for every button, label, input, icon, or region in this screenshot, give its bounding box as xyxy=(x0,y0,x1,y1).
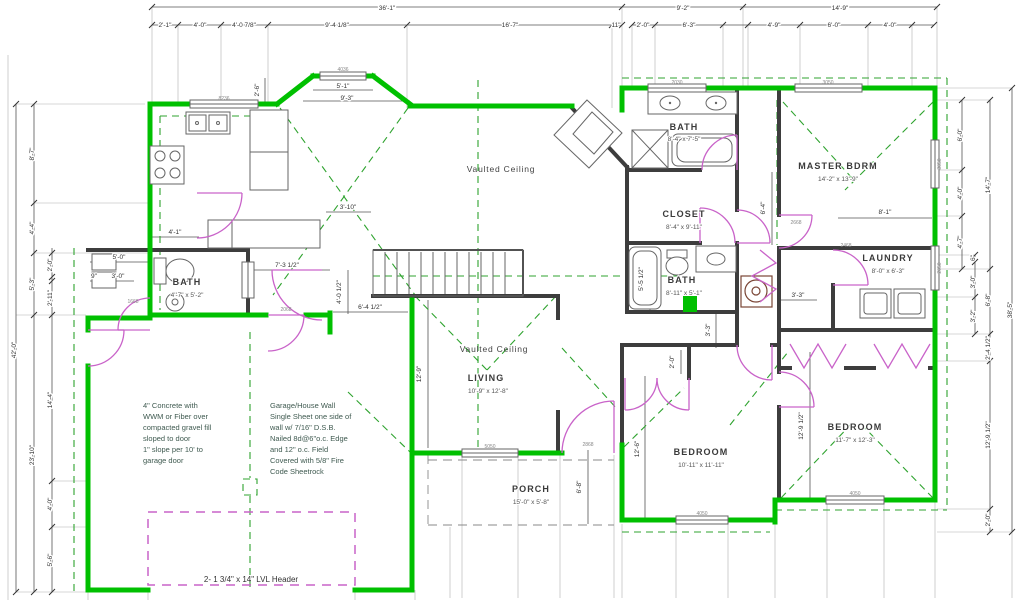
dim-label: 3'-3" xyxy=(792,292,806,299)
bathtub-2 xyxy=(629,247,661,309)
dim-label: 14'-7" xyxy=(985,176,992,193)
room-size: 14'-2" x 13'-9" xyxy=(818,176,859,183)
room-label-laundry: LAUNDRY xyxy=(862,253,913,263)
room-label-master: MASTER BDRM xyxy=(798,161,878,171)
dim-label: 4'-0" xyxy=(957,186,964,200)
dim-label: 6'-3" xyxy=(683,22,697,29)
dim-label: 9" xyxy=(91,273,98,280)
dim-label: 42'-0" xyxy=(11,341,18,358)
dim-label: 3'-10" xyxy=(340,204,357,211)
room-label-closet: CLOSET xyxy=(662,209,705,219)
room-label-living: LIVING xyxy=(468,373,505,383)
door-tag: 2068 xyxy=(280,307,291,313)
note-line: Garage/House Wall xyxy=(270,401,336,410)
room-label-bedroom-2: BEDROOM xyxy=(828,422,883,432)
room-size: 8'-4" x 9'-11" xyxy=(666,224,703,231)
door-garage-entry xyxy=(268,315,304,351)
room-size: 8'-0" x 6'-3" xyxy=(872,268,905,275)
dim-label: 38'-5" xyxy=(1007,301,1014,318)
note-line: sloped to door xyxy=(143,434,191,443)
dim-label: 2'-1" xyxy=(159,22,173,29)
window-tag: 3050 xyxy=(937,158,943,169)
room-size: 10'-9" x 12'-8" xyxy=(468,388,509,395)
dim-label: 6'-8" xyxy=(576,480,583,494)
door-garage-side xyxy=(88,330,124,366)
dim-label: 3'-3" xyxy=(705,323,712,337)
dim-label: 2'-0" xyxy=(985,513,992,527)
water-heater xyxy=(741,276,772,307)
room-size: 8'-4" x 7'-5" xyxy=(668,136,701,143)
toilet-2 xyxy=(666,250,688,275)
dim-label: 7'-3 1/2" xyxy=(275,262,299,269)
garage-center-post xyxy=(243,479,257,495)
dim-label: 12'-6" xyxy=(634,440,641,457)
room-label-porch: PORCH xyxy=(512,484,550,494)
dim-label: 23'-10" xyxy=(29,444,36,465)
dim-label: 4'-4" xyxy=(29,221,36,235)
refrigerator xyxy=(250,110,288,190)
dim-label: 16'-7" xyxy=(502,22,519,29)
room-size: 4'-7" x 5'-2" xyxy=(171,292,204,299)
room-size: 15'-0" x 5'-8" xyxy=(513,499,550,506)
dim-label: 5'-3" xyxy=(29,277,36,291)
note-line: wall w/ 7/16" D.S.B. xyxy=(269,423,336,432)
room-label-bath-mid: BATH xyxy=(668,275,697,285)
note-line: garage door xyxy=(143,456,184,465)
dim-label: 3'-0" xyxy=(112,273,126,280)
dim-label: 6'-8" xyxy=(985,293,992,307)
window-tag: 8236 xyxy=(218,96,229,102)
vaulted-ceiling-label: Vaulted Ceiling xyxy=(467,164,536,174)
note-line: Single Sheet one side of xyxy=(270,412,352,421)
dim-label: 8'-7" xyxy=(29,147,36,161)
kitchen-sink xyxy=(186,112,230,134)
construction-notes: 4" Concrete with WWM or Fiber over compa… xyxy=(143,401,352,584)
pocket-door xyxy=(242,262,254,298)
roof-dashed-lines xyxy=(74,78,947,592)
note-line: Covered with 5/8" Fire xyxy=(270,456,344,465)
dim-label: 4'-0" xyxy=(47,497,54,511)
bath-vanity-double xyxy=(648,92,737,114)
dim-label: 4'-0 1/2" xyxy=(336,279,343,303)
dim-label: 4'-0 7/8" xyxy=(232,22,256,29)
dim-label: 12'-9 1/2" xyxy=(985,421,992,449)
dim-label: 2'-0" xyxy=(637,22,651,29)
room-size: 8'-11" x 5'-1" xyxy=(666,290,703,297)
dim-label: 11" xyxy=(611,22,621,29)
structural-post xyxy=(683,296,697,312)
dim-label: 2'-0" xyxy=(47,258,54,272)
dim-label: 9'-4 1/8" xyxy=(325,22,349,29)
note-line: 1" slope per 10' to xyxy=(143,445,203,454)
window xyxy=(826,496,884,504)
dim-label: 6'-0" xyxy=(957,128,964,142)
dim-label: 2'-0" xyxy=(669,355,676,369)
shower xyxy=(632,130,668,168)
room-label-bath-left: BATH xyxy=(173,277,202,287)
room-label-bedroom-1: BEDROOM xyxy=(674,447,729,457)
dim-label: 5'-6" xyxy=(47,553,54,567)
room-size: 10'-11" x 11'-11" xyxy=(678,462,724,469)
lvl-header-note: 2- 1 3/4" x 14" LVL Header xyxy=(204,575,299,584)
window xyxy=(320,72,366,80)
door-tag: 2468 xyxy=(840,243,851,249)
interior-walls xyxy=(88,88,935,500)
room-size: 11'-7" x 12'-3" xyxy=(835,437,875,444)
door-bedroom-2 xyxy=(779,372,814,407)
dim-label: 6" xyxy=(970,254,977,261)
entry-fireplace xyxy=(554,100,622,168)
note-line: and 12" o.c. Field xyxy=(270,445,328,454)
window-tag: 5050 xyxy=(484,444,495,450)
dim-label: 12'-9 1/2" xyxy=(798,412,805,440)
dim-label: 36'-1" xyxy=(379,5,396,12)
window-tag: 2050 xyxy=(937,262,943,273)
door-bedroom-1 xyxy=(737,345,772,380)
dim-label: 9'-2" xyxy=(677,5,691,12)
dim-label: 2'-4 1/2" xyxy=(985,335,992,359)
dim-label: 6'-4" xyxy=(760,201,767,215)
dim-label: 6'-0" xyxy=(828,22,842,29)
dim-label: 5'-1" xyxy=(337,83,351,90)
window xyxy=(676,516,728,524)
dim-label: 8'-1" xyxy=(879,209,893,216)
dim-label: 14'-9" xyxy=(832,5,849,12)
dim-label: 3'-2" xyxy=(970,309,977,323)
note-line: Nailed 8d@6"o.c. Edge xyxy=(270,434,348,443)
dim-label: 2'-11" xyxy=(47,289,54,306)
dim-label: 5'-0" xyxy=(113,254,127,261)
washer xyxy=(860,289,891,318)
note-line: Code Sheetrock xyxy=(270,467,324,476)
stove xyxy=(150,146,184,184)
dim-label: 3'-0" xyxy=(970,275,977,289)
dim-label: 9'-3" xyxy=(341,95,355,102)
door-closet-double xyxy=(625,378,689,410)
staircase xyxy=(373,250,523,296)
exterior-walls xyxy=(88,76,935,590)
dim-label: 2'-6" xyxy=(254,83,261,97)
window-tag: 4050 xyxy=(849,491,860,497)
dim-label: 14'-4" xyxy=(47,391,54,408)
kitchen-counter xyxy=(208,220,320,248)
dim-label: 4'-9" xyxy=(768,22,782,29)
note-line: WWM or Fiber over xyxy=(143,412,209,421)
door-tag: 2868 xyxy=(582,442,593,448)
dim-label: 5'-5 1/2" xyxy=(638,266,645,290)
window-tag: 4036 xyxy=(337,67,348,73)
dryer xyxy=(894,289,925,318)
window-tag: 2030 xyxy=(671,80,682,86)
vaulted-ceiling-label: Vaulted Ceiling xyxy=(460,344,529,354)
note-line: 4" Concrete with xyxy=(143,401,198,410)
window-tag: 3050 xyxy=(822,80,833,86)
dim-label: 4'-1" xyxy=(169,229,183,236)
note-line: compacted gravel fill xyxy=(143,423,212,432)
room-label-bath-top: BATH xyxy=(670,122,699,132)
window-tag: 4050 xyxy=(696,511,707,517)
window xyxy=(462,449,518,457)
dim-label: 6'-4 1/2" xyxy=(358,304,382,311)
bath2-vanity xyxy=(696,246,736,272)
door-tag: 2668 xyxy=(790,220,801,226)
floor-plan-page: 36'-1" 9'-2" 14'-9" 2'-1" 4'-0" 4'-0 7/8… xyxy=(0,0,1024,600)
dim-label: 4'-0" xyxy=(194,22,208,29)
fixtures xyxy=(92,92,925,318)
dim-label: 4'-0" xyxy=(884,22,898,29)
door-tag: 1668 xyxy=(127,299,138,305)
dim-label: 12'-9" xyxy=(416,365,423,382)
floor-plan-drawing: 36'-1" 9'-2" 14'-9" 2'-1" 4'-0" 4'-0 7/8… xyxy=(0,0,1024,600)
dim-label: 4'-7" xyxy=(957,235,964,249)
